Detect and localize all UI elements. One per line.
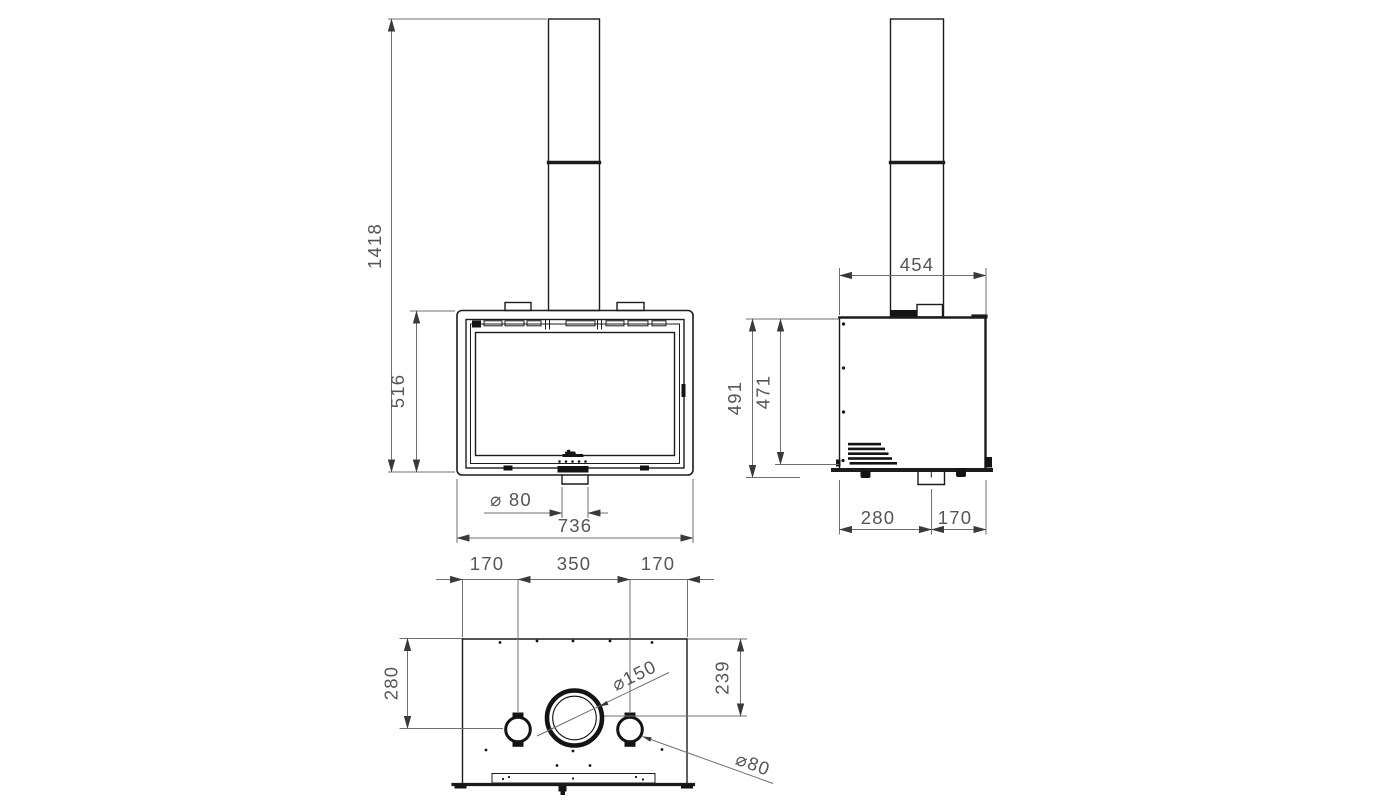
dim-label-280-side: 280 <box>861 507 895 528</box>
air-duct-80-left <box>506 713 531 747</box>
corner-tab-right <box>681 785 693 789</box>
vent-grille <box>848 443 897 465</box>
stove-technical-drawing: 1418 516 ⌀ 80 736 <box>0 0 1400 800</box>
foot-left <box>861 471 871 479</box>
dim-label-350: 350 <box>557 553 591 574</box>
dim-label-170-side: 170 <box>938 507 972 528</box>
rear-tab <box>836 460 841 467</box>
center-clip <box>559 786 567 792</box>
dim-label-170-left: 170 <box>470 553 504 574</box>
screw-holes <box>485 640 664 767</box>
foot-right <box>956 468 966 477</box>
stove-body-front <box>457 311 693 476</box>
front-view: 1418 516 ⌀ 80 736 <box>364 19 693 543</box>
dim-label-outlet: ⌀ 80 <box>490 489 532 510</box>
leader-duct-diameter: ⌀80 <box>643 737 774 784</box>
top-bracket-left <box>505 303 531 311</box>
base-plate <box>453 639 694 795</box>
dim-label-516: 516 <box>387 374 408 408</box>
edge-screws <box>841 322 845 462</box>
dim-label-170-right: 170 <box>641 553 675 574</box>
dim-label-736: 736 <box>558 515 592 536</box>
brand-logo <box>563 450 584 458</box>
flue-pipe-front <box>549 19 600 311</box>
dim-label-239: 239 <box>712 660 733 694</box>
mounting-strip <box>492 774 655 784</box>
air-duct-80-right <box>618 713 643 747</box>
dim-top-chain: 170 350 170 <box>436 553 714 712</box>
corner-tab-left <box>455 785 467 789</box>
dim-body-height: 516 <box>387 311 455 472</box>
glass-panel <box>476 333 675 456</box>
front-bracket <box>985 457 993 468</box>
stove-body-side <box>833 316 991 470</box>
bottom-mark-left <box>504 466 513 471</box>
door-frame <box>466 320 684 469</box>
door-handle-mark <box>682 384 686 397</box>
latch-bar <box>558 466 589 473</box>
dim-outer-height: 491 <box>724 319 839 478</box>
top-bracket-right <box>617 303 644 311</box>
air-control-dots <box>558 460 587 463</box>
dim-bottom-front: 170 <box>932 507 987 530</box>
dim-label-1418: 1418 <box>364 223 385 269</box>
dim-top-depth: 454 <box>840 254 987 315</box>
bottom-view: 170 350 170 280 239 ⌀150 ⌀80 <box>381 553 774 795</box>
dim-label-471: 471 <box>753 375 774 409</box>
dim-label-491: 491 <box>724 381 745 415</box>
technical-drawing-page: 1418 516 ⌀ 80 736 <box>0 0 1400 800</box>
dim-inner-height: 471 <box>753 319 840 465</box>
dim-outlet-diameter: ⌀ 80 <box>484 487 608 518</box>
leader-arrow <box>643 737 652 742</box>
side-view: 454 491 471 280 170 <box>724 19 992 535</box>
air-duct-stub-front <box>562 475 588 484</box>
bottom-mark-right <box>640 466 649 471</box>
dim-depth-ducts: 280 <box>381 639 504 729</box>
dim-label-454: 454 <box>900 254 934 275</box>
dim-label-duct-diameter: ⌀80 <box>733 748 773 780</box>
door-frame-inner <box>471 324 680 464</box>
pipe-collar-box <box>917 305 943 318</box>
dim-label-280-bottom: 280 <box>381 666 402 700</box>
